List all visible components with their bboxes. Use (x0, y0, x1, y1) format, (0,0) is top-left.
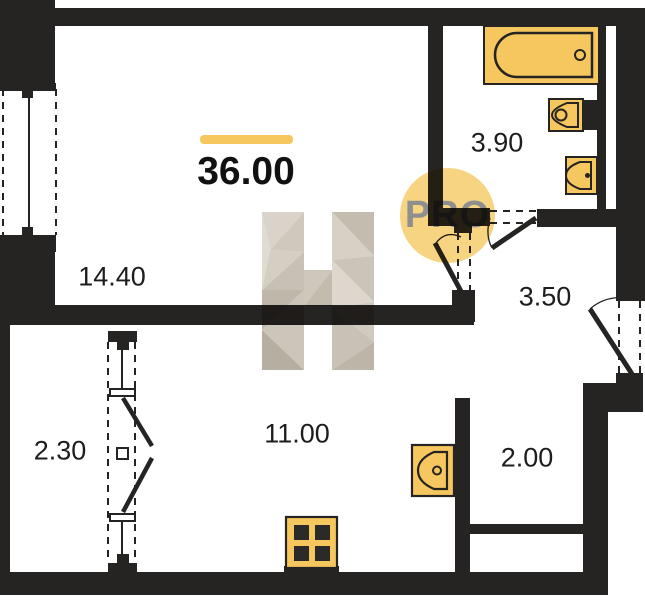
pro-badge: PRO (400, 168, 495, 263)
balcony-door-dash-left (107, 342, 109, 563)
room-label-balcony: 2.30 (34, 436, 87, 467)
entry-door (590, 298, 632, 374)
total-area-label: 36.00 (197, 150, 295, 194)
wall-living-bottom (0, 305, 474, 325)
door-leaf (123, 398, 152, 446)
pro-badge-text: PRO (405, 194, 490, 237)
entry-door-jamb-bottom (616, 373, 643, 383)
balcony-door-pivot-top (117, 339, 129, 350)
balcony-door-handle (116, 447, 129, 460)
room-label-living: 14.40 (78, 262, 146, 293)
kitchen-sink-icon (412, 445, 454, 496)
wall-storage-right (583, 412, 608, 575)
living-door-jamb-bottom (452, 290, 475, 322)
bath-door-dash-bottom (490, 222, 537, 224)
wall-bottom (0, 572, 608, 595)
watermark-h-logo (262, 212, 375, 370)
room-label-storage: 2.00 (501, 443, 554, 474)
stove-icon (284, 517, 339, 575)
washbasin-icon (566, 157, 597, 194)
wall-kitchen-right (455, 398, 470, 575)
wall-balcony-left (0, 322, 10, 575)
wall-top (55, 8, 645, 26)
door-leaf (123, 458, 152, 512)
floor-plan: PRO 36.00 14.40 3.90 3.50 2.30 11.00 2.0… (0, 0, 645, 600)
bathtub-icon (484, 26, 599, 84)
window-dash-right (55, 89, 57, 235)
wall-storage-bottom (466, 524, 583, 534)
watermark-facets (262, 212, 374, 370)
wall-right-outer (616, 26, 645, 301)
total-area-accent-bar (200, 135, 293, 144)
wall-corner-top-left (0, 0, 55, 85)
bath-door-dash-top (490, 210, 537, 212)
window-glass-line (28, 96, 30, 230)
balcony-frame-top (109, 388, 136, 397)
wall-entry-block (583, 383, 643, 412)
balcony-glass-top (121, 350, 123, 389)
toilet-icon (549, 99, 583, 131)
window-dash-left (2, 89, 4, 235)
balcony-frame-bottom (109, 513, 136, 522)
entry-door-dash-left (618, 301, 620, 373)
toilet-duct-block (583, 100, 606, 130)
balcony-glass-bottom (121, 522, 123, 555)
balcony-door-cap-bottom (108, 563, 137, 575)
room-label-kitchen: 11.00 (264, 419, 330, 450)
entry-door-dash-right (639, 301, 641, 373)
door-leaf (590, 309, 632, 374)
room-label-hallway: 3.50 (519, 282, 572, 313)
room-label-bathroom: 3.90 (471, 128, 524, 159)
balcony-door-dash-right (134, 342, 136, 563)
